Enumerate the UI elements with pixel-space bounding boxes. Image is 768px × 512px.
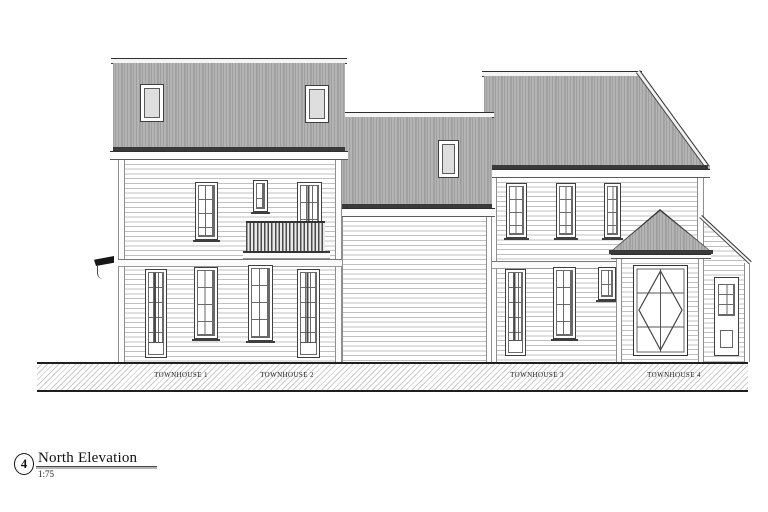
window-sill	[192, 339, 220, 341]
window-sill	[251, 212, 270, 214]
window-sill	[554, 238, 578, 240]
unit-label-townhouse3: TOWNHOUSE 3	[510, 371, 564, 379]
window-gf-th3	[553, 267, 576, 339]
window-panes	[251, 268, 270, 338]
wing-corner-board	[744, 263, 750, 362]
skylight-pane	[309, 89, 325, 119]
window-2f-th3-a	[506, 183, 527, 238]
window-gf-th2	[248, 265, 273, 341]
detail-number: 4	[21, 457, 27, 472]
window-2f-th1	[195, 182, 218, 240]
window-2f-th3-c	[604, 183, 621, 238]
window-panes	[198, 185, 215, 237]
window-panes	[601, 270, 613, 297]
french-door-th2	[297, 269, 320, 358]
window-panes	[256, 183, 265, 209]
window-sill	[246, 341, 275, 343]
right-eave-fascia	[484, 169, 710, 178]
window-panes	[607, 186, 618, 235]
window-sill	[551, 339, 578, 341]
skylight-left-a	[140, 84, 164, 122]
window-panes	[559, 186, 573, 235]
window-panes	[197, 270, 215, 336]
window-sill	[602, 238, 623, 240]
middle-corner-right	[486, 217, 492, 362]
left-eave-fascia	[110, 151, 348, 160]
drawing-sheet: TOWNHOUSE 1 TOWNHOUSE 2 TOWNHOUSE 3 TOWN…	[0, 0, 768, 512]
canopy-bracket	[97, 266, 103, 279]
french-door-th1	[145, 269, 167, 358]
ground-strip: TOWNHOUSE 1 TOWNHOUSE 2 TOWNHOUSE 3 TOWN…	[37, 362, 748, 392]
diamond-glazed-door-th4	[633, 265, 688, 356]
window-sill	[596, 300, 618, 302]
window-panes	[556, 270, 573, 336]
middle-roof	[335, 117, 492, 207]
middle-wall	[337, 217, 492, 362]
title-underline	[36, 466, 157, 469]
door-lite-grid	[718, 284, 735, 316]
window-2f-th2-small	[253, 180, 268, 212]
window-panes	[509, 186, 524, 235]
door-panel	[720, 330, 733, 348]
skylight-pane	[442, 144, 455, 174]
skylight-left-b	[305, 85, 329, 123]
balcony-railing	[246, 221, 325, 253]
wing-entry-door	[714, 277, 739, 356]
left-floor-band	[118, 259, 342, 267]
window-2f-th3-b	[556, 183, 576, 238]
middle-eave-fascia	[332, 208, 495, 217]
unit-label-townhouse4: TOWNHOUSE 4	[647, 371, 701, 379]
drawing-title: North Elevation	[38, 450, 137, 467]
door-panes	[300, 272, 317, 355]
window-sill	[193, 240, 220, 242]
window-sill	[504, 238, 529, 240]
skylight-pane	[144, 88, 160, 118]
porch-corner-left	[616, 259, 622, 362]
unit-label-townhouse2: TOWNHOUSE 2	[260, 371, 314, 379]
skylight-middle	[438, 140, 459, 178]
door-panes	[508, 272, 523, 353]
porch-corner-right	[698, 259, 704, 362]
unit-label-townhouse1: TOWNHOUSE 1	[154, 371, 208, 379]
drawing-scale: 1:75	[38, 469, 54, 479]
detail-number-bubble: 4	[14, 453, 34, 475]
entry-canopy	[94, 256, 114, 266]
door-panes	[148, 272, 164, 355]
french-door-th3	[505, 269, 526, 356]
window-small-th3	[598, 267, 616, 300]
window-gf-th1	[194, 267, 218, 339]
